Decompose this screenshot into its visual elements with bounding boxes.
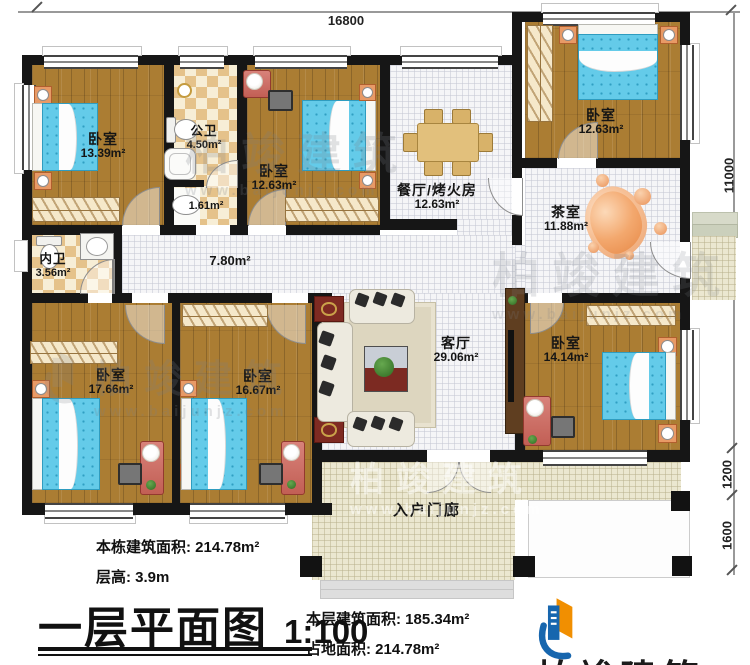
nightstand (34, 86, 52, 104)
computer-monitor (118, 463, 142, 485)
room-name: 入户门廊 (365, 503, 489, 520)
room-label-inner-bath: 内卫 3.56m² (26, 253, 80, 279)
brand-name: 柏竣建筑 (536, 660, 710, 665)
window (180, 55, 224, 69)
dimension-porch: 1200 (720, 445, 735, 505)
side-table (314, 296, 344, 322)
room-area: 29.06m² (410, 351, 502, 364)
room-label-bath-anteroom: 1.61m² (176, 200, 236, 212)
dining-table (417, 123, 479, 162)
room-label-entry-porch: 入户门廊 (365, 503, 489, 520)
room-name: 卧室 (228, 164, 320, 179)
nightstand (359, 172, 376, 189)
lamp-icon (526, 399, 544, 417)
room-area: 13.39m² (55, 147, 151, 160)
wardrobe (182, 304, 268, 327)
computer-monitor (268, 90, 293, 111)
wardrobe (285, 197, 379, 222)
nightstand (34, 172, 52, 190)
bed-sheet (329, 101, 349, 170)
room-label-tea-room: 茶室 11.88m² (520, 205, 612, 234)
wardrobe (586, 305, 676, 326)
floor-side-patio (692, 236, 736, 300)
title-underline (38, 647, 312, 651)
plant-icon (374, 357, 394, 377)
tea-deco-dot (588, 242, 599, 253)
bed (302, 100, 376, 171)
footprint-value: 214.78m² (375, 641, 439, 658)
building-area-value: 214.78m² (195, 539, 259, 556)
plant-icon (528, 435, 537, 444)
dining-chair (452, 161, 471, 176)
dining-chair (424, 161, 443, 176)
building-area-line: 本栋建筑面积: 214.78m² (96, 536, 259, 557)
floor-tea-link (515, 245, 525, 293)
window (45, 503, 133, 519)
dining-chair (452, 109, 471, 124)
room-label-bedroom-bottom-right: 卧室 14.14m² (518, 336, 614, 365)
window (680, 330, 694, 420)
bed (578, 24, 658, 100)
room-name: 卧室 (64, 368, 158, 383)
wall (596, 158, 690, 168)
window (402, 55, 498, 69)
porch-column (672, 556, 692, 576)
footprint-label: 占地面积: (306, 641, 371, 658)
room-name: 卧室 (55, 132, 151, 147)
wardrobe (527, 25, 553, 122)
room-name: 餐厅/烤火房 (383, 183, 491, 198)
floor-plan-canvas: 16800 11000 1200 1600 (0, 0, 750, 665)
window (190, 503, 285, 519)
plant-icon (508, 296, 517, 305)
room-area: 11.88m² (520, 220, 612, 233)
wall (562, 293, 690, 303)
wall (22, 293, 88, 303)
title-underline-thin (38, 654, 312, 656)
wall (312, 450, 427, 462)
room-label-public-bath: 公卫 4.50m² (172, 125, 236, 151)
bed-sheet (59, 399, 78, 489)
room-name: 茶室 (520, 205, 612, 220)
floor-height-label: 层高: (96, 569, 131, 586)
room-label-bedroom-bottom-left: 卧室 17.66m² (64, 368, 158, 397)
room-area: 17.66m² (64, 383, 158, 396)
wall (512, 12, 522, 65)
room-name: 公卫 (172, 125, 236, 139)
tea-deco-dot (654, 222, 667, 235)
dimension-steps: 1600 (720, 506, 735, 566)
bed (32, 398, 100, 490)
tea-deco-dot (596, 174, 609, 187)
nightstand (559, 26, 577, 44)
walkway (528, 500, 690, 578)
nightstand (180, 380, 197, 397)
wardrobe (32, 197, 120, 222)
wardrobe (30, 341, 118, 364)
shower-drain-icon (177, 83, 192, 98)
room-area: 12.63m² (556, 123, 646, 136)
room-area: 16.67m² (212, 384, 304, 397)
tea-deco-dot (625, 251, 634, 260)
drawing-title: 一层平面图 (38, 604, 268, 653)
room-label-bedroom-top-left: 卧室 13.39m² (55, 132, 151, 161)
nightstand (660, 26, 678, 44)
plant-icon (146, 480, 156, 490)
level-area-label: 本层建筑面积: (306, 611, 401, 628)
bed-sheet (208, 399, 226, 489)
porch-column (513, 556, 535, 577)
lamp-icon (283, 444, 300, 461)
level-area-value: 185.34m² (405, 611, 469, 628)
dining-chair (403, 133, 418, 152)
tv-icon (508, 330, 514, 402)
building-area-label: 本栋建筑面积: (96, 539, 191, 556)
dim-tick (726, 564, 737, 575)
bed-sheet (629, 353, 649, 419)
wall (168, 293, 272, 303)
brand-block: 柏竣建筑 www.baijunjz.com (536, 594, 750, 665)
lamp-icon (246, 73, 263, 90)
nightstand (32, 380, 50, 398)
room-label-dining: 餐厅/烤火房 12.63m² (383, 183, 491, 212)
nightstand (658, 424, 677, 443)
room-label-bedroom-bottom-middle: 卧室 16.67m² (212, 369, 304, 398)
room-area: 12.63m² (383, 198, 491, 211)
wall (515, 158, 557, 168)
window (543, 450, 647, 466)
porch-column (300, 556, 322, 577)
floor-height-value: 3.9m (135, 569, 169, 586)
level-area-line: 本层建筑面积: 185.34m² (306, 608, 469, 629)
room-label-hallway: 7.80m² (196, 254, 264, 268)
plant-icon (287, 480, 296, 489)
computer-monitor (259, 463, 283, 485)
room-name: 卧室 (518, 336, 614, 351)
porch-column (671, 491, 690, 511)
dining-chair (478, 133, 493, 152)
dining-chair (424, 109, 443, 124)
wall (164, 180, 204, 187)
room-label-bedroom-top-right: 卧室 12.63m² (556, 108, 646, 137)
room-area: 14.14m² (518, 351, 614, 364)
nightstand (359, 84, 376, 101)
level-stats: 本层建筑面积: 185.34m² 占地面积: 214.78m² (306, 608, 469, 665)
dimension-top: 16800 (316, 13, 376, 28)
footprint-line: 占地面积: 214.78m² (306, 638, 469, 659)
dim-tick (725, 4, 736, 15)
building-stats: 本栋建筑面积: 214.78m² 层高: 3.9m (96, 536, 259, 596)
wall (160, 225, 196, 235)
computer-monitor (551, 416, 575, 438)
window (44, 55, 138, 69)
room-label-bedroom-top-middle: 卧室 12.63m² (228, 164, 320, 193)
floor-hallway (122, 235, 520, 293)
wall (380, 219, 457, 230)
wall (172, 293, 180, 515)
room-name: 卧室 (212, 369, 304, 384)
room-name: 内卫 (26, 253, 80, 267)
room-area: 3.56m² (26, 267, 80, 279)
floor-passage (457, 219, 515, 235)
brand-logo-icon (536, 594, 580, 660)
room-name: 客厅 (410, 336, 502, 351)
wall (286, 225, 380, 235)
tea-deco-dot (634, 188, 651, 205)
lamp-icon (142, 444, 160, 462)
floor-height-line: 层高: 3.9m (96, 566, 259, 587)
bed (181, 398, 247, 490)
room-area: 1.61m² (176, 200, 236, 212)
sink-icon (80, 233, 114, 260)
room-area: 7.80m² (196, 254, 264, 268)
dimension-side: 11000 (722, 146, 737, 206)
room-area: 4.50m² (172, 139, 236, 151)
wall (114, 293, 132, 303)
room-label-living-room: 客厅 29.06m² (410, 336, 502, 365)
shower-tray (164, 148, 196, 180)
window (255, 55, 347, 69)
room-area: 12.63m² (228, 179, 320, 192)
wall (230, 225, 248, 235)
room-name: 卧室 (556, 108, 646, 123)
window (680, 45, 694, 140)
floor-porch-wing (515, 462, 681, 500)
